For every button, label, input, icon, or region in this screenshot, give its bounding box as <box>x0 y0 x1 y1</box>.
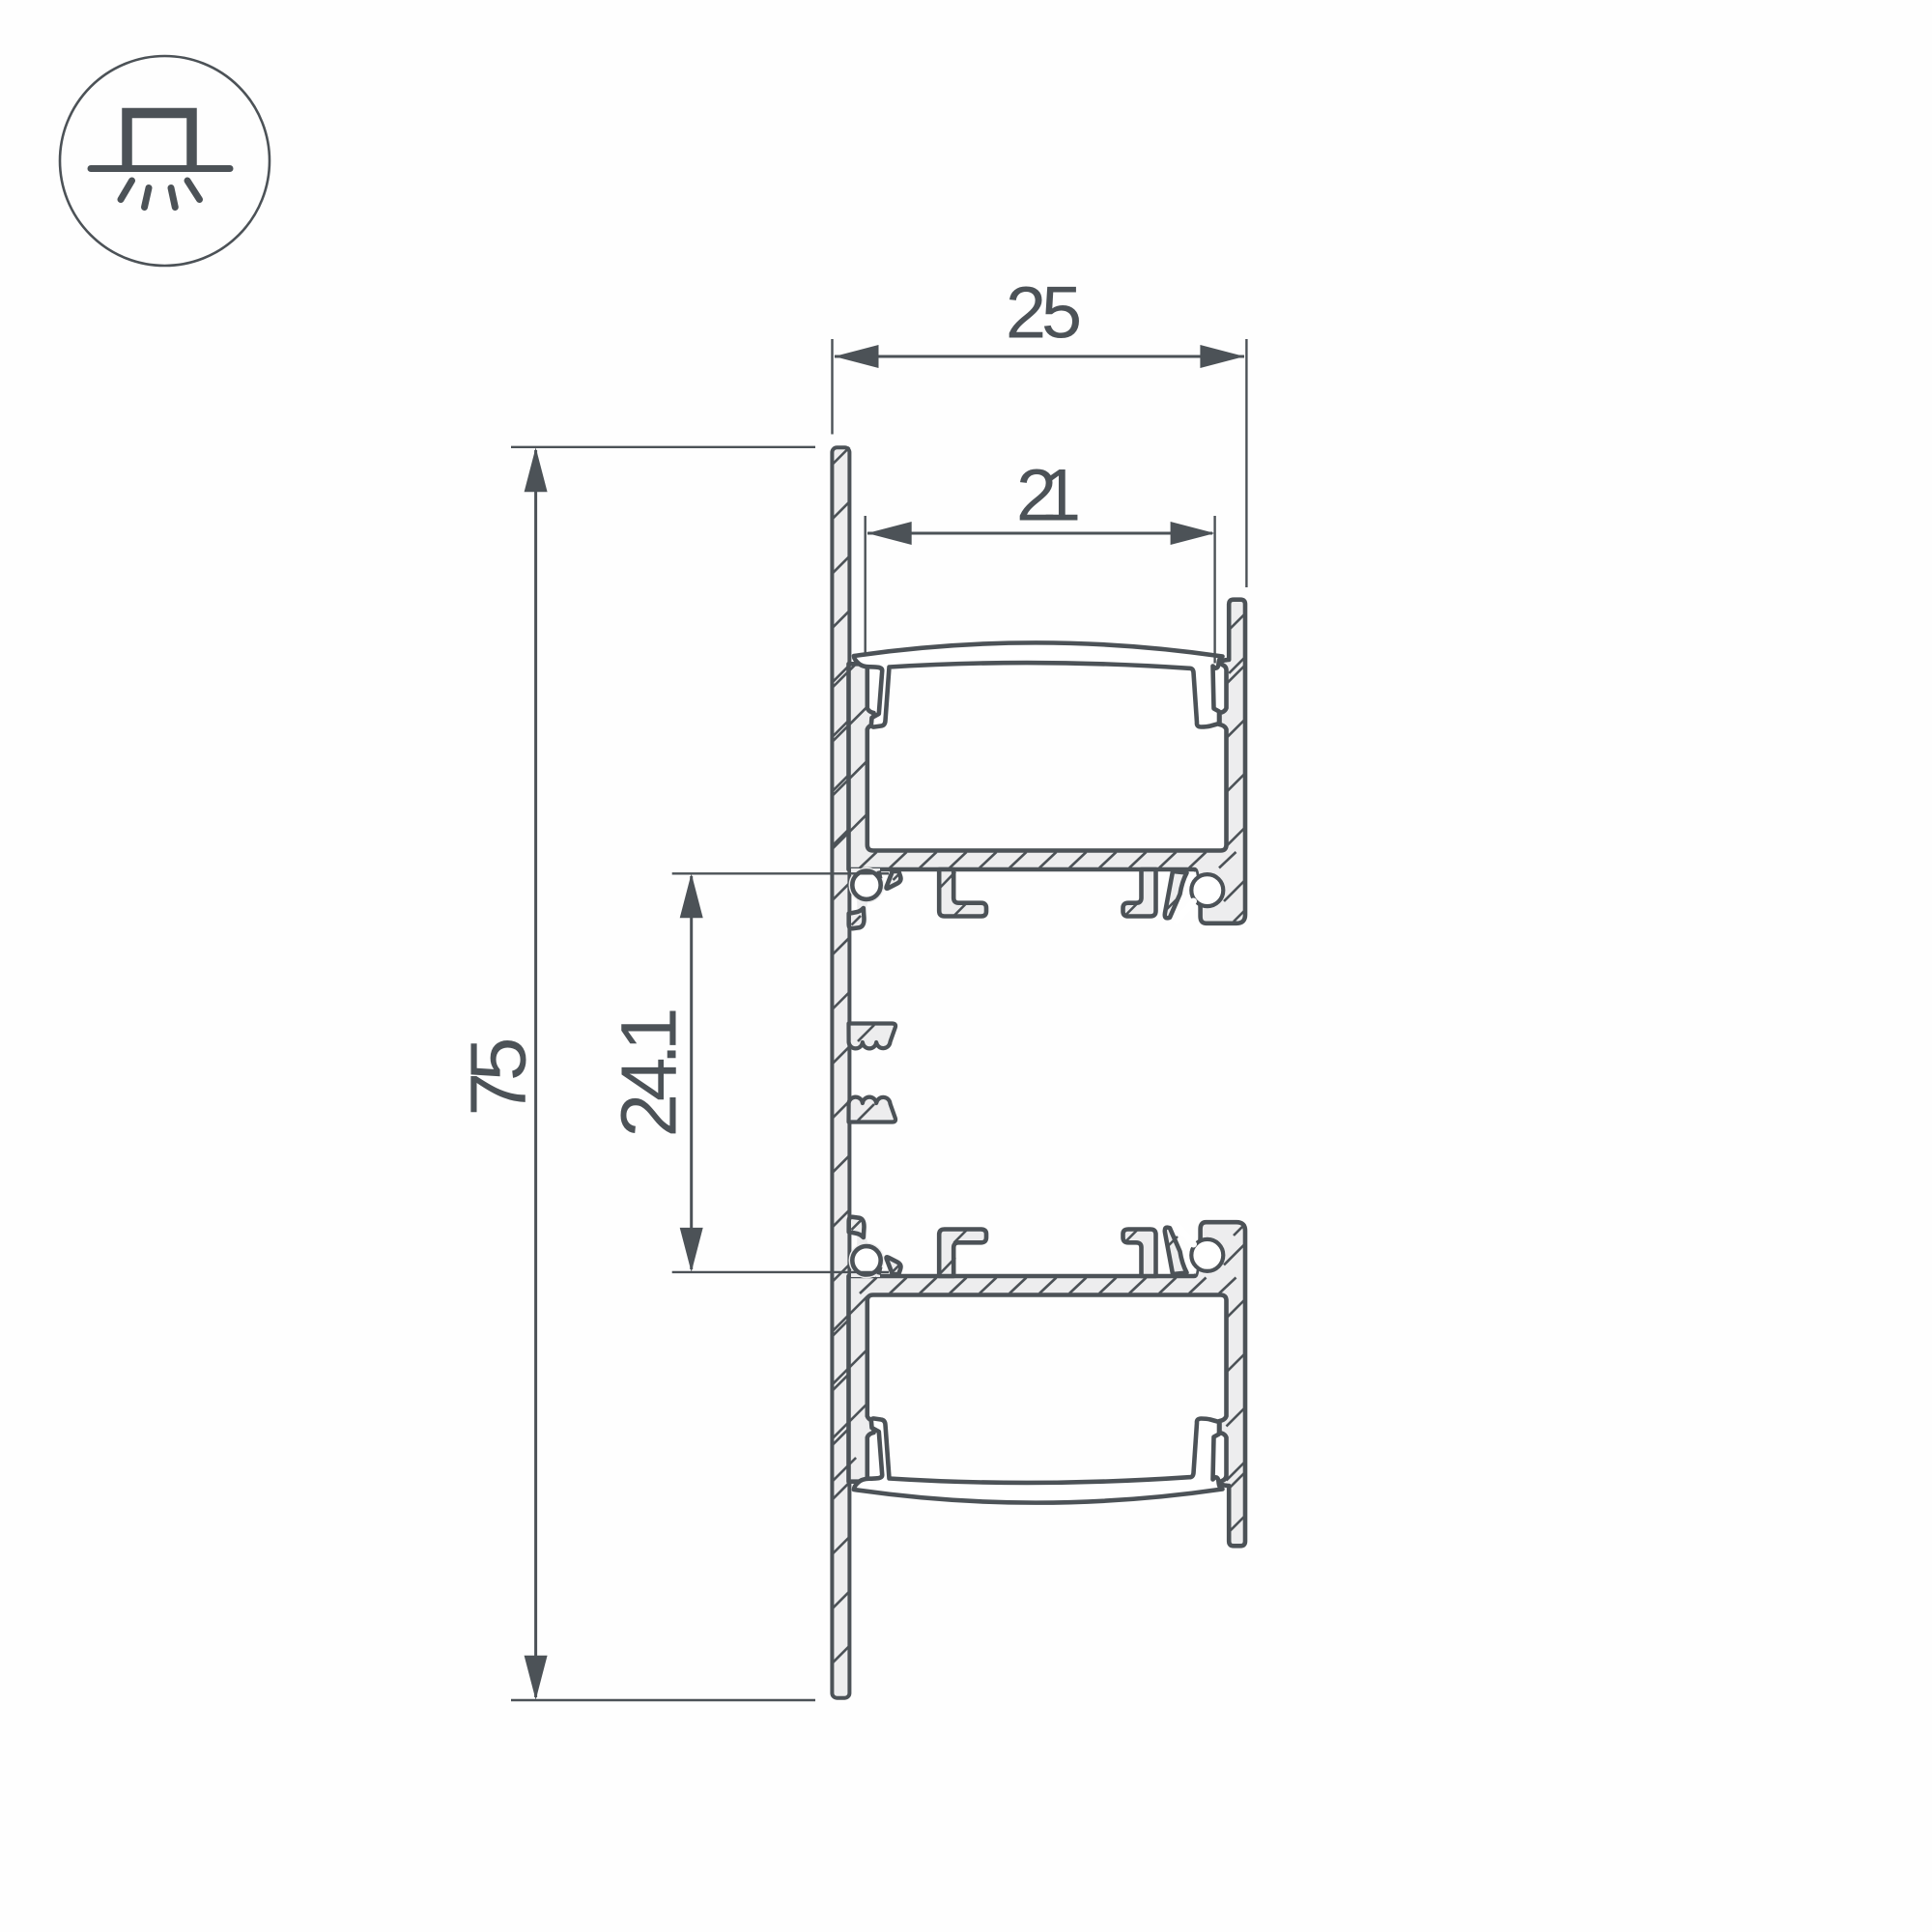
svg-text:75: 75 <box>455 1037 543 1117</box>
svg-text:5: 5 <box>1041 272 1082 355</box>
svg-text:1: 1 <box>1040 455 1081 537</box>
svg-text:24.1: 24.1 <box>606 1008 694 1138</box>
svg-text:2: 2 <box>1006 272 1046 355</box>
